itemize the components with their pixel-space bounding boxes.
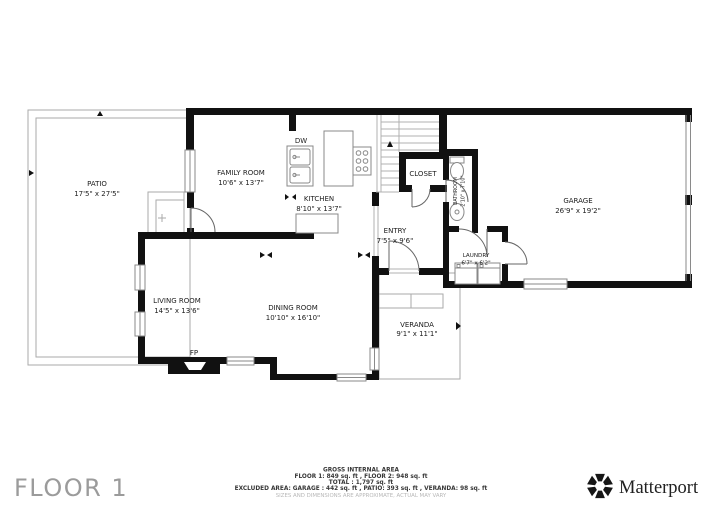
area-summary-disclaimer: SIZES AND DIMENSIONS ARE APPROXIMATE, AC… [276, 493, 447, 499]
room-label-closet: CLOSET [409, 170, 437, 178]
room-label-family-room: FAMILY ROOM [217, 169, 265, 177]
walls [138, 108, 692, 380]
floor-title: FLOOR 1 [14, 474, 128, 502]
room-label-kitchen: KITCHEN [304, 195, 334, 203]
fireplace [168, 362, 220, 374]
room-dims-laundry: 6'7" x 6'2" [461, 261, 491, 267]
room-label-patio: PATIO [87, 180, 107, 188]
matterport-wordmark: Matterport [619, 478, 699, 498]
matterport-logo-icon [587, 474, 613, 498]
room-dims-bathroom: 2'10" x 7'10" [461, 175, 467, 206]
room-dims-family-room: 10'6" x 13'7" [218, 179, 264, 187]
dishwasher-label: DW [295, 137, 307, 145]
matterport-logo: Matterport [587, 474, 699, 498]
room-dims-veranda: 9'1" x 11'1" [396, 330, 437, 338]
room-label-living-room: LIVING ROOM [153, 297, 201, 305]
opening-marks [260, 252, 370, 258]
room-label-bathroom: BATHROOM [453, 177, 459, 205]
area-summary-title: GROSS INTERNAL AREA [323, 468, 400, 474]
room-label-dining-room: DINING ROOM [268, 304, 318, 312]
floor-plan-page: PATIO 17'5" x 27'5" FAMILY ROOM 10'6" x … [0, 0, 720, 508]
room-dims-living-room: 14'5" x 13'6" [154, 307, 200, 315]
room-label-laundry: LAUNDRY [463, 253, 490, 259]
room-dims-entry: 7'5" x 9'6" [377, 237, 414, 245]
room-label-garage: GARAGE [563, 197, 592, 205]
room-label-entry: ENTRY [384, 227, 407, 235]
area-summary-excluded: EXCLUDED AREA: GARAGE : 442 sq. ft , PAT… [235, 486, 488, 492]
fireplace-label: FP [190, 349, 198, 357]
room-dims-kitchen: 8'10" x 13'7" [296, 205, 342, 213]
room-dims-dining-room: 10'10" x 16'10" [266, 314, 321, 322]
room-dims-patio: 17'5" x 27'5" [74, 190, 120, 198]
room-label-veranda: VERANDA [400, 321, 434, 329]
area-summary: GROSS INTERNAL AREA FLOOR 1: 849 sq. ft … [235, 468, 488, 500]
kitchen-island [324, 131, 353, 186]
kitchen-fixtures [285, 131, 371, 233]
kitchen-counter [296, 214, 338, 233]
floor-plan-drawing: PATIO 17'5" x 27'5" FAMILY ROOM 10'6" x … [0, 0, 720, 508]
footer: FLOOR 1 GROSS INTERNAL AREA FLOOR 1: 849… [14, 468, 699, 503]
room-dims-garage: 26'9" x 19'2" [555, 207, 601, 215]
